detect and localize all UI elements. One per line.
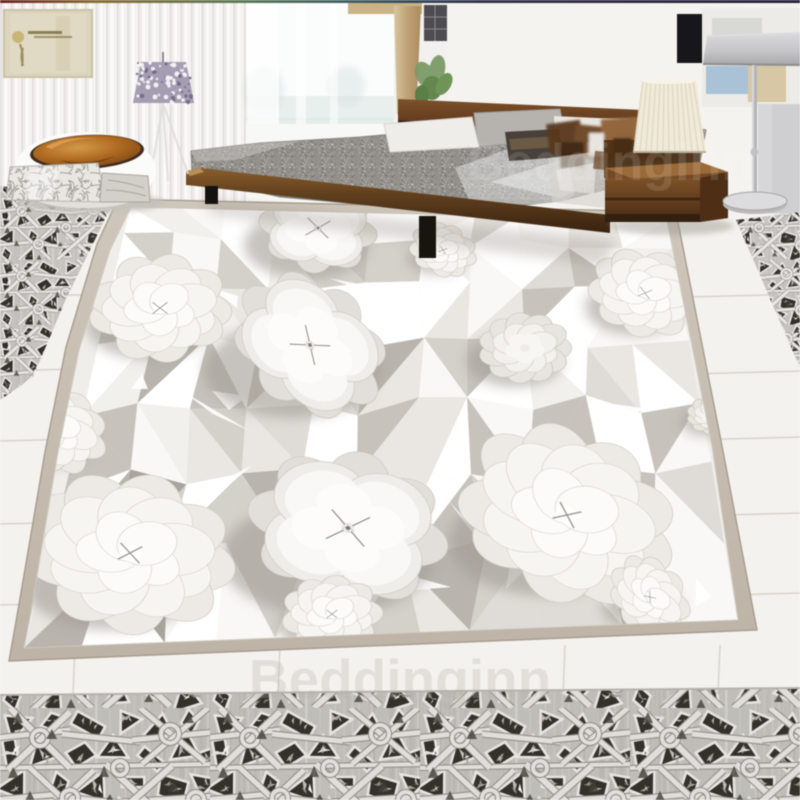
svg-text:Beddinginn: Beddinginn	[249, 648, 551, 710]
svg-text:Beddinginn: Beddinginn	[467, 134, 753, 192]
